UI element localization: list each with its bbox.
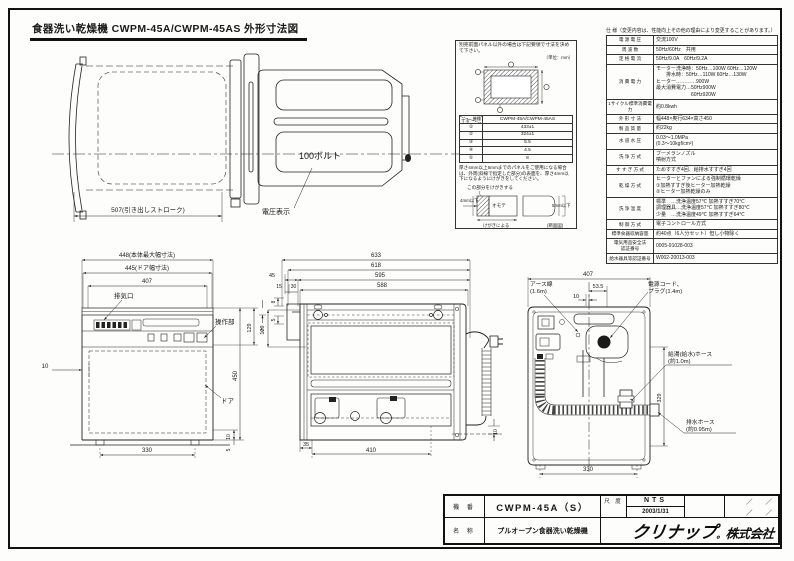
corner-type-label: 機種	[473, 116, 481, 121]
cord-coil	[482, 348, 491, 416]
panel-section-diagram: この部分をけがきする オモテ 4mm以下 5mm以下 けがきによる (断面図)	[459, 182, 573, 228]
power-cord	[466, 332, 487, 337]
leader-voltage	[294, 168, 312, 208]
door-inner-panel	[230, 60, 241, 198]
spec-label: 制 御 方 式	[607, 220, 654, 230]
spec-value: 約22kg	[654, 124, 778, 134]
dim-10-left: 10	[42, 364, 49, 370]
logo-company-text: 株式会社	[725, 527, 774, 541]
dim-329: 329	[657, 393, 663, 402]
dim-588: 588	[377, 283, 388, 289]
dim-330: 330	[142, 448, 153, 454]
spec-value: ためすすぎ4回、給排水すすぎ4回	[654, 165, 778, 175]
section-name-label: (断面図)	[547, 222, 564, 228]
mount-bracket	[287, 304, 300, 340]
spec-table: 電 源 電 圧交流100V 周 波 数50Hz/60Hz 共用 定 格 電 流5…	[606, 35, 778, 264]
spec-value: モーター洗浄時：50Hz…100W 60Hz…120W 排水時：50Hz…110…	[654, 64, 778, 100]
door-label: ドア	[221, 397, 235, 405]
value-cell: 433±1	[483, 124, 573, 132]
dim-5-bottom: 5	[226, 448, 232, 451]
leader-exhaust	[104, 300, 122, 320]
side-view-drawing: 633 618 595 588 45 15 30 8 5 129 35 410 …	[254, 248, 504, 504]
revision-cell: ／ ／	[725, 507, 778, 518]
spec-label: 製 品 質 量	[607, 124, 654, 134]
spec-value: 約0.8kwh	[654, 100, 778, 115]
inset-note1: 別売前面パネル以外の場合は下記要領で寸法を決めて下さい。	[459, 43, 573, 55]
dim-10: 10	[573, 294, 579, 300]
body-outline	[82, 315, 213, 440]
spec-label: 洗 浄 方 式	[607, 149, 654, 165]
leader-cord	[610, 292, 648, 338]
inset-note2: 厚さ4mm以上5mmまでのパネルをご使用になる場合は、外周(斜線で指定した部分)…	[459, 165, 573, 182]
power-plug-label: プラグ(1.4m)	[648, 287, 682, 295]
voltage-display-label: 電圧表示	[262, 207, 290, 216]
spec-value: W002-20013-003	[654, 254, 778, 264]
dim-445: 445(ドア幅寸法)	[125, 264, 169, 272]
spec-label: 給水器具等認証番号	[607, 254, 654, 264]
dim-595: 595	[375, 273, 386, 279]
revision-cell: ／ ／	[725, 496, 778, 507]
exhaust-slots	[96, 322, 127, 328]
control-buttons	[148, 333, 207, 342]
panel-sizing-inset: 別売前面パネル以外の場合は下記要領で寸法を決めて下さい。 （単位：mm）	[455, 40, 577, 229]
dim-448: 448(本体最大幅寸法)	[119, 251, 175, 259]
leader-earth	[544, 295, 578, 332]
corner-dim-label: 寸法	[461, 118, 469, 123]
panel-dimension-table: 機種 寸法 CWPM-45A/CWPM-45AS ① 433±1 ② 324±1…	[459, 115, 573, 163]
dim-8: 8	[271, 300, 277, 303]
spec-label: 乾 燥 方 式	[607, 175, 654, 198]
panel-frame-diagram	[460, 60, 572, 114]
voltage-text: 100ボルト	[299, 151, 341, 161]
spec-value: 0.03～1.0MPa (0.3～10kgf/cm²)	[654, 133, 778, 149]
spec-label: 水 道 水 圧	[607, 133, 654, 149]
dim-450: 450	[233, 370, 239, 381]
dim-407: 407	[583, 272, 594, 278]
leader-controls	[204, 326, 216, 338]
dim-10-bottom: 10	[226, 434, 232, 440]
title-block: 機 番 CWPM-45A（S） 尺 度 NTS ／ ／ 2003/1/31 ／ …	[443, 494, 780, 545]
blank-cell	[685, 507, 725, 518]
section-omote-label: オモテ	[492, 203, 506, 209]
date-value: 2003/1/31	[627, 507, 685, 518]
spec-value: 交流100V	[654, 36, 778, 46]
dim-618: 618	[371, 263, 382, 269]
blank-cell	[685, 496, 725, 507]
tub-panel	[311, 326, 451, 374]
dim-53-5: 53.5	[593, 284, 604, 290]
spec-label: 消 費 電 力	[607, 64, 654, 100]
dim-15: 15	[276, 284, 282, 290]
company-logo: クリナップ。株式会社	[601, 518, 778, 543]
spec-value: 50Hz/60Hz 共用	[654, 45, 778, 55]
value-cell: 324±1	[483, 131, 573, 139]
spec-label: 周 波 数	[607, 45, 654, 55]
spec-value: 0005-91028-003	[654, 239, 778, 254]
top-recess	[276, 80, 392, 110]
section-by-label: けがきによる	[483, 222, 509, 228]
blank-cell	[601, 507, 627, 518]
dim-410: 410	[366, 448, 377, 454]
dim-45: 45	[269, 273, 275, 279]
spec-label: 電 源 電 圧	[607, 36, 654, 46]
mark-cell: ③	[460, 139, 483, 147]
product-name-label: 名 称	[445, 518, 485, 543]
section-kegaki-label: この部分をけがきする	[467, 184, 513, 191]
section-4mm-label: 4mm以下	[460, 198, 479, 204]
spec-value: 約40点（6人分セット）但し小物除く	[654, 229, 778, 239]
model-number-label: 機 番	[445, 496, 485, 517]
drain-hose-label: 排水ホース	[686, 418, 715, 426]
spec-label: 標準食器収納容量	[607, 229, 654, 239]
basket-outline	[98, 72, 226, 184]
page-title: 食器洗い乾燥機 CWPM-45A/CWPM-45AS 外形寸法図	[30, 21, 307, 41]
leader-water-hose	[632, 365, 732, 400]
front-edge-arc	[69, 64, 76, 212]
earth-wire-label: アース線	[530, 280, 553, 288]
value-cell: 4.5	[483, 147, 573, 155]
dim-129: 129	[260, 325, 266, 334]
mark-cell: ①	[460, 124, 483, 132]
drawer-rails	[86, 66, 234, 190]
spec-value: ブーメランノズル 噴射方式	[654, 149, 778, 165]
dim-5: 5	[271, 318, 277, 321]
mark-cell: ②	[460, 131, 483, 139]
dim-407: 407	[142, 279, 153, 285]
body-outline	[258, 70, 402, 186]
dim-129: 129	[247, 323, 253, 332]
spec-label: 洗 浄 温 度	[607, 197, 654, 220]
dim-10: 10	[493, 429, 499, 435]
door-front-panel	[244, 54, 259, 204]
spec-label: 外 形 寸 法	[607, 114, 654, 124]
spec-value: 幅448×奥行634×高さ450	[654, 114, 778, 124]
exhaust-label: 排気口	[114, 291, 134, 300]
dim-330: 330	[583, 467, 594, 473]
spec-value: ヒーターとファンによる強制循環乾燥 ①加熱すすぎ後ヒーター加熱乾燥 ②ヒーター加…	[654, 175, 778, 198]
spec-label: す す ぎ 方 式	[607, 165, 654, 175]
table-corner-cell: 機種 寸法	[460, 116, 483, 124]
rear-knob	[405, 154, 411, 162]
water-hose-label: 給湯(給水)ホース	[668, 350, 712, 358]
spec-label: 電気用品安全法 認証番号	[607, 239, 654, 254]
power-cord-label: 電源コード、	[648, 280, 683, 288]
dim-507-label: 507(引き出しストローク)	[111, 205, 185, 214]
model-number-value: CWPM-45A（S）	[485, 496, 601, 517]
power-plug	[490, 336, 498, 347]
front-view-drawing: 448(本体最大幅寸法) 445(ドア幅寸法) 407 排気口 操作部 ドア 1…	[30, 248, 266, 504]
mark-cell: ④	[460, 147, 483, 155]
logo-main-text: クリナップ	[631, 523, 718, 542]
drain-hose-length: (約0.95m)	[686, 425, 712, 433]
controls-label: 操作部	[215, 317, 235, 326]
dim-35: 35	[303, 442, 309, 448]
cord-entry	[598, 336, 611, 349]
table-model-header: CWPM-45A/CWPM-45AS	[483, 116, 573, 124]
dim-30: 30	[291, 284, 297, 290]
spec-label: 1サイクル標準消費電力	[607, 100, 654, 115]
plan-view-drawing: 100ボルト 電圧表示 507(引き出しストローク)	[36, 42, 462, 254]
drawing-sheet: 食器洗い乾燥機 CWPM-45A/CWPM-45AS 外形寸法図	[0, 0, 794, 561]
door-outline	[89, 351, 206, 433]
spec-value: 電子コントロール方式	[654, 220, 778, 230]
product-name-value: プルオープン食器洗い乾燥機	[485, 518, 601, 543]
drain-hose-end	[650, 404, 659, 416]
value-cell: 8	[483, 155, 573, 163]
scale-label: 尺 度	[601, 496, 627, 507]
mark-cell: ⑤	[460, 155, 483, 163]
scale-value: NTS	[627, 496, 685, 507]
spec-label: 定 格 電 流	[607, 55, 654, 65]
water-hose-length: (約1.0m)	[668, 357, 691, 365]
value-cell: 5.5	[483, 139, 573, 147]
spec-value: 標準 …洗浄温度57℃ 加熱すすぎ70℃ 調理器具…洗浄温度57℃ 加熱すすぎ8…	[654, 197, 778, 220]
spec-value: 50Hz/9.0A 60Hz/9.2A	[654, 55, 778, 65]
dim-633: 633	[371, 253, 382, 259]
earth-wire-length: (1.6m)	[530, 289, 547, 295]
spec-table-section: 仕 様（変更内容は、性能向上その他の理由により変更することがあります。） 電 源…	[606, 27, 780, 264]
rear-view-drawing: 407 53.5 10 アース線 (1.6m) 電源コード、 プラグ(1.4m)…	[500, 262, 792, 502]
spec-title: 仕 様（変更内容は、性能向上その他の理由により変更することがあります。）	[606, 27, 780, 34]
